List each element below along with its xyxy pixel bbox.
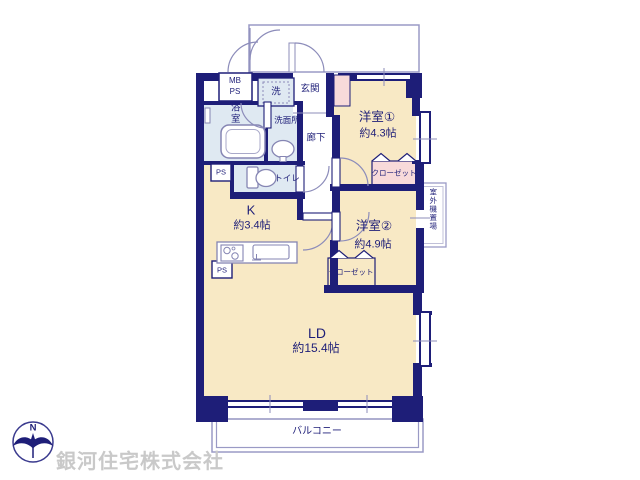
- living-dining-size: 約15.4帖: [292, 342, 339, 354]
- western2-size: 約4.9帖: [354, 240, 391, 251]
- bathroom-label: 浴室: [229, 102, 239, 125]
- company-watermark: 銀河住宅株式会社: [56, 452, 224, 472]
- floorplan-image: MB PS 洗 玄関 浴室 洗面所 廊下 トイレ PS PS K 約3.4帖 洋…: [0, 0, 640, 480]
- living-dining-label: LD: [308, 326, 326, 340]
- kitchen-counter-icon: [217, 242, 297, 263]
- balcony-label: バルコニー: [292, 427, 342, 437]
- toilet-label: トイレ: [274, 174, 300, 183]
- closet2-label: クローゼット: [329, 268, 374, 276]
- western1-label: 洋室①: [359, 111, 395, 124]
- laundry-label: 洗: [271, 87, 281, 97]
- hallway-label: 廊下: [306, 133, 325, 143]
- mb-label: MB: [229, 77, 241, 85]
- closet1-label: クローゼット: [372, 169, 417, 177]
- common-corridor-outline: [249, 25, 419, 72]
- ps1-label: PS: [216, 168, 226, 176]
- ps2-label: PS: [217, 266, 227, 274]
- outdoor-unit-label: 室外機置場: [429, 188, 437, 231]
- kitchen-label: K: [247, 204, 256, 217]
- western2-label: 洋室②: [356, 220, 392, 233]
- western1-size: 約4.3帖: [359, 129, 396, 140]
- ps-label-top: PS: [230, 88, 241, 96]
- kitchen-size: 約3.4帖: [233, 221, 270, 232]
- washroom-label: 洗面所: [274, 116, 300, 125]
- floorplan-drawing: [0, 0, 640, 480]
- entrance-label: 玄関: [300, 84, 319, 94]
- compass-north-label: N: [30, 423, 37, 433]
